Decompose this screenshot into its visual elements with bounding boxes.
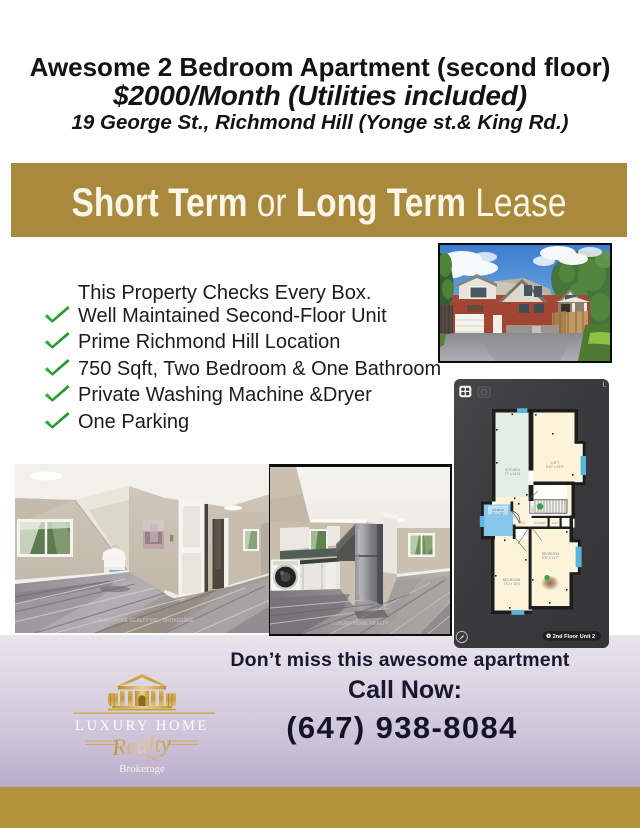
svg-text:Realty: Realty xyxy=(110,731,172,760)
svg-text:CLO: CLO xyxy=(552,521,559,525)
svg-text:L: L xyxy=(603,382,607,389)
svg-text:2nd Floor Unit 2: 2nd Floor Unit 2 xyxy=(553,634,596,640)
svg-text:HALL: HALL xyxy=(531,505,535,512)
svg-text:Brokerage: Brokerage xyxy=(119,763,165,775)
svg-text:LUXURY HOME: LUXURY HOME xyxy=(75,718,209,734)
svg-text:9'6" x 11'7": 9'6" x 11'7" xyxy=(542,556,559,560)
svg-text:7'10 x 15'6: 7'10 x 15'6 xyxy=(503,582,519,586)
svg-text:7'7 x 16'11: 7'7 x 16'11 xyxy=(505,472,521,476)
svg-text:9'11" x 19'9": 9'11" x 19'9" xyxy=(546,465,565,469)
svg-text:CLOSET: CLOSET xyxy=(534,521,546,525)
svg-text:5'1" x 7'2": 5'1" x 7'2" xyxy=(492,511,504,515)
svg-text:INC.: INC. xyxy=(147,754,162,763)
svg-text:LUXURY HOME REALTY INC., BROKE: LUXURY HOME REALTY INC., BROKERAGE xyxy=(92,618,195,624)
svg-text:HALL: HALL xyxy=(518,521,526,525)
svg-text:LUXURY HOME REALTY: LUXURY HOME REALTY xyxy=(332,621,390,627)
